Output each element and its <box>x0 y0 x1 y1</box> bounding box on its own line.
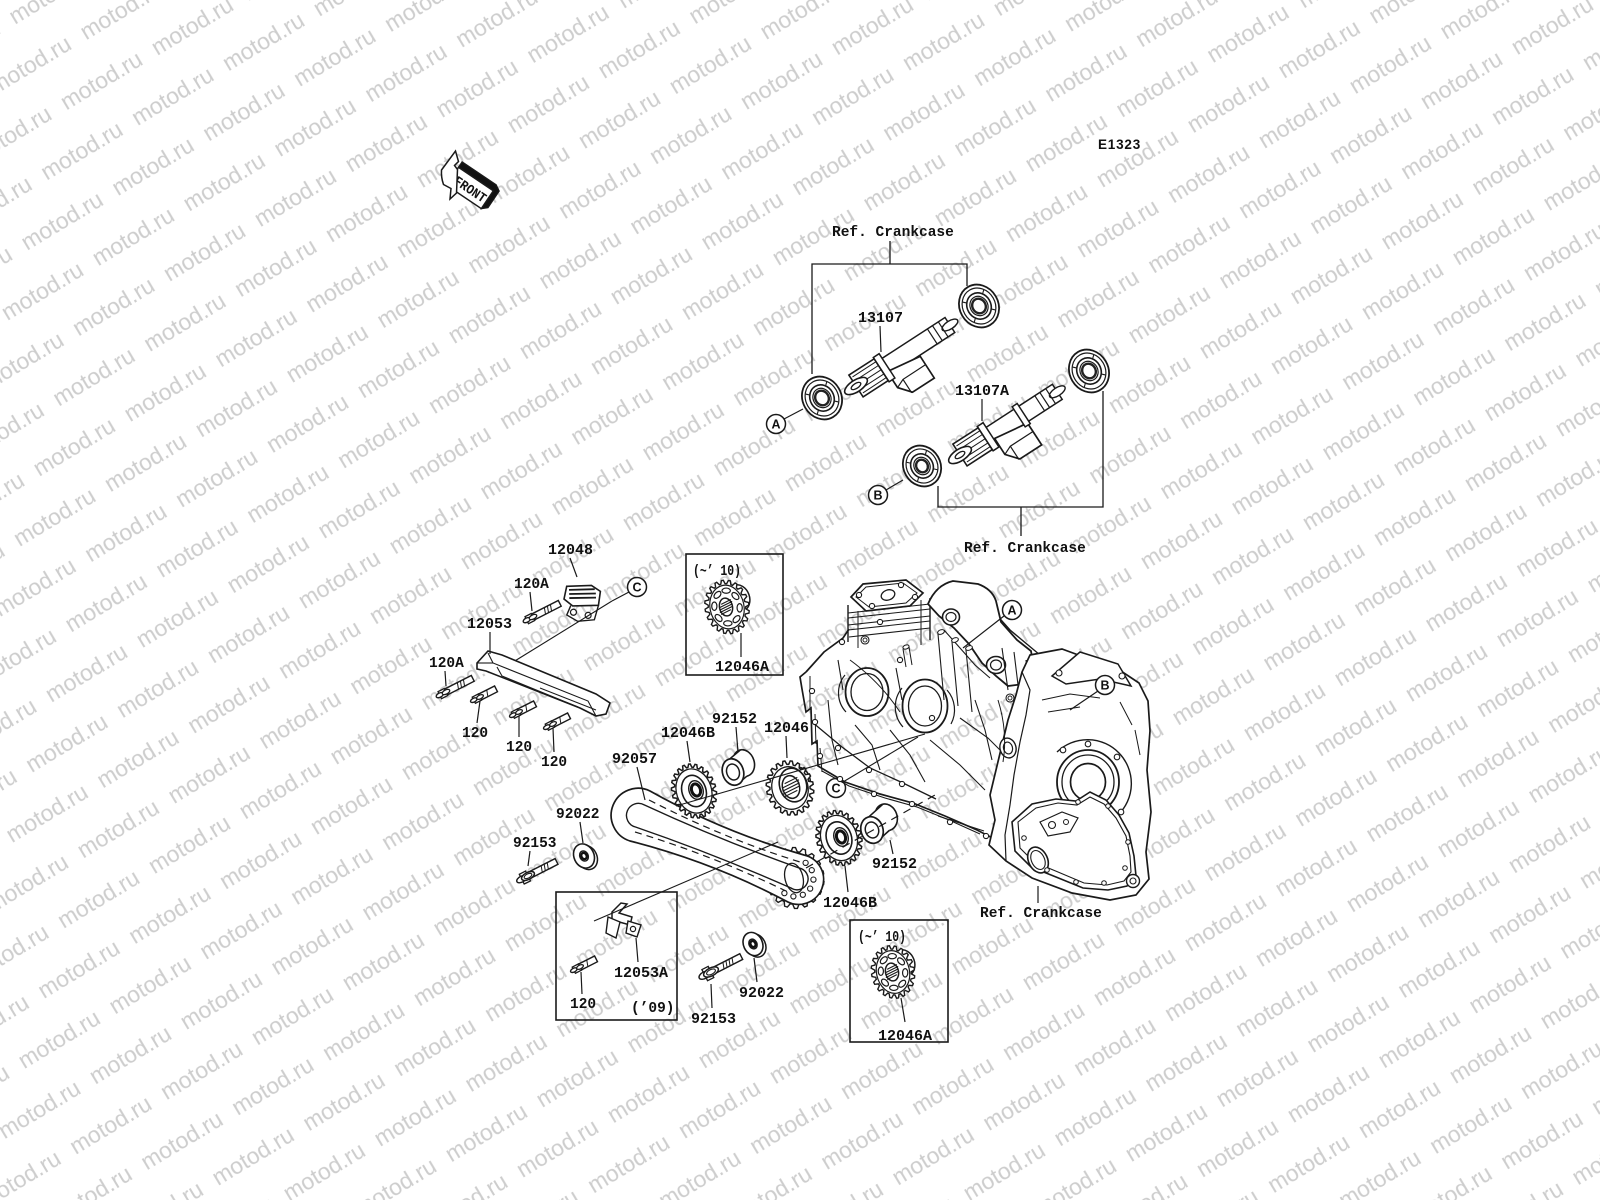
svg-text:12046A: 12046A <box>878 1028 932 1045</box>
svg-text:120: 120 <box>570 997 596 1013</box>
svg-text:Ref. Crankcase: Ref. Crankcase <box>832 225 954 241</box>
svg-text:(~’ 10): (~’ 10) <box>858 930 906 946</box>
svg-text:92022: 92022 <box>556 807 600 823</box>
svg-text:12046A: 12046A <box>715 659 769 676</box>
svg-text:120A: 120A <box>514 577 549 593</box>
svg-text:(’09): (’09) <box>631 1001 675 1017</box>
svg-text:120A: 120A <box>429 656 464 672</box>
svg-text:B: B <box>873 489 882 503</box>
svg-text:12053A: 12053A <box>614 965 668 982</box>
svg-text:92022: 92022 <box>739 985 784 1002</box>
svg-text:(~’ 10): (~’ 10) <box>693 564 741 580</box>
svg-text:13107A: 13107A <box>955 383 1009 400</box>
svg-text:B: B <box>1100 679 1109 693</box>
svg-text:E1323: E1323 <box>1098 137 1141 152</box>
svg-text:A: A <box>771 418 780 432</box>
svg-text:120: 120 <box>506 740 532 756</box>
svg-text:92152: 92152 <box>712 711 757 728</box>
svg-text:Ref. Crankcase: Ref. Crankcase <box>980 906 1102 922</box>
svg-text:92057: 92057 <box>612 751 657 768</box>
svg-text:A: A <box>1007 604 1016 618</box>
svg-text:12046B: 12046B <box>661 725 715 742</box>
svg-text:120: 120 <box>462 726 488 742</box>
svg-text:92152: 92152 <box>872 856 917 873</box>
svg-text:12048: 12048 <box>548 542 593 559</box>
svg-text:12046B: 12046B <box>823 895 877 912</box>
svg-text:12046: 12046 <box>764 720 809 737</box>
svg-text:92153: 92153 <box>691 1011 736 1028</box>
svg-text:92153: 92153 <box>513 836 557 852</box>
svg-text:12053: 12053 <box>467 616 512 633</box>
svg-text:13107: 13107 <box>858 310 903 327</box>
svg-text:Ref. Crankcase: Ref. Crankcase <box>964 541 1086 557</box>
svg-text:120: 120 <box>541 755 567 771</box>
svg-text:C: C <box>632 581 641 595</box>
svg-text:C: C <box>831 782 840 796</box>
